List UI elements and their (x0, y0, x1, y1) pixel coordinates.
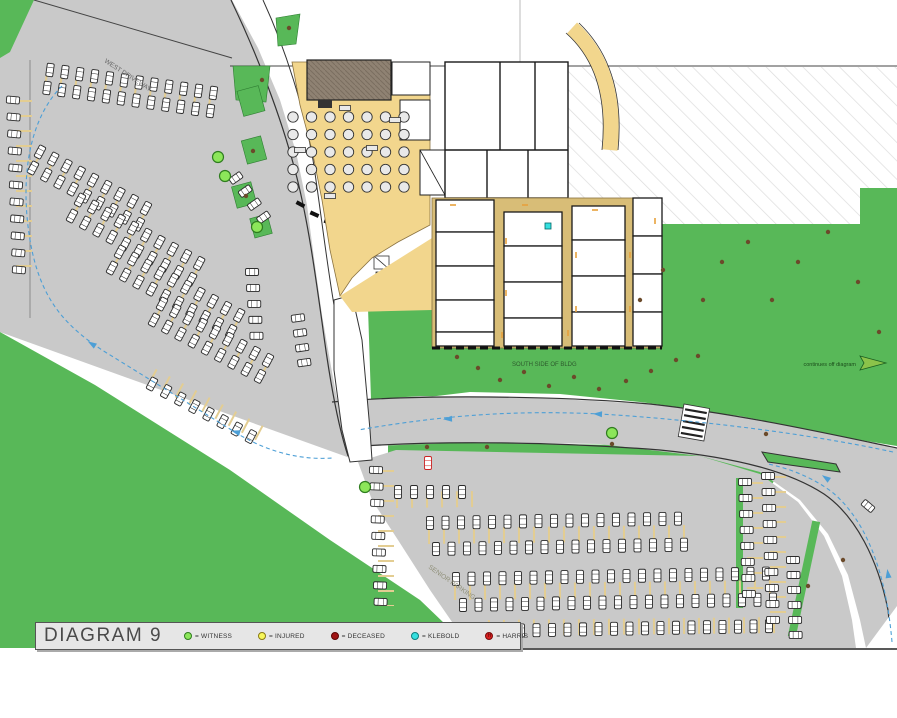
parked-car (443, 486, 450, 499)
parked-car (599, 596, 606, 609)
parked-car (787, 571, 800, 578)
parked-car (9, 181, 23, 189)
parked-car (499, 572, 506, 585)
parked-car (762, 473, 775, 480)
cafeteria-table (362, 164, 372, 174)
tree-icon (674, 358, 678, 362)
parked-car (654, 569, 661, 582)
parked-car (587, 540, 594, 553)
parked-car (707, 594, 714, 607)
parked-car (612, 513, 619, 526)
cafeteria-table (288, 182, 298, 192)
parked-car (564, 623, 571, 636)
cafeteria-table (399, 147, 409, 157)
cafeteria-table (380, 147, 390, 157)
tree-icon (649, 369, 653, 373)
parked-car (427, 486, 434, 499)
parked-car (583, 596, 590, 609)
parked-car (576, 570, 583, 583)
parked-car (731, 568, 738, 581)
legend-dot-icon: H (485, 632, 493, 640)
parked-car (105, 71, 114, 85)
tree-icon (696, 354, 700, 358)
tree-icon (485, 445, 489, 449)
parked-car (488, 515, 495, 528)
parked-car (716, 568, 723, 581)
parked-car (6, 96, 20, 104)
parked-car (634, 539, 641, 552)
legend-item-label: = INJURED (269, 633, 305, 640)
parked-car (249, 316, 262, 323)
parked-car (395, 486, 402, 499)
parked-car (680, 538, 687, 551)
parked-car (369, 466, 382, 473)
parked-car (371, 516, 384, 523)
tree-icon (251, 149, 255, 153)
parked-car (626, 622, 633, 635)
parked-car (789, 631, 802, 638)
parked-car (740, 510, 753, 517)
legend-dot-icon (184, 632, 192, 640)
parked-car (473, 516, 480, 529)
parked-car (688, 621, 695, 634)
parked-car (740, 526, 753, 533)
site-map-svg: SOUTH SIDE OF BLDG continues off diagram… (0, 0, 897, 718)
parked-car (442, 516, 449, 529)
parked-car (579, 623, 586, 636)
parked-car (674, 512, 681, 525)
parked-car (764, 552, 777, 559)
parked-car (248, 300, 261, 307)
tree-icon (856, 280, 860, 284)
parked-car (595, 623, 602, 636)
tree-icon (720, 260, 724, 264)
tree-icon (746, 240, 750, 244)
parked-car (550, 514, 557, 527)
off-diagram-label: continues off diagram (804, 362, 857, 368)
tree-icon (522, 370, 526, 374)
parked-car (630, 596, 637, 609)
cafeteria-table (362, 182, 372, 192)
parked-car (610, 622, 617, 635)
tree-icon (597, 387, 601, 391)
cafeteria-table (325, 182, 335, 192)
parked-car (645, 595, 652, 608)
parked-car (10, 215, 24, 223)
tree-icon (638, 298, 642, 302)
parked-car (494, 541, 501, 554)
parked-car (685, 568, 692, 581)
cafeteria-table (306, 147, 316, 157)
parked-car (750, 620, 757, 633)
parked-car (659, 512, 666, 525)
parked-car (43, 81, 52, 95)
parked-car (641, 622, 648, 635)
parked-car (703, 621, 710, 634)
parked-car (568, 597, 575, 610)
tree-icon (610, 442, 614, 446)
cafeteria-table (343, 112, 353, 122)
parked-car (723, 594, 730, 607)
parked-car (250, 332, 263, 339)
cafeteria-table (288, 129, 298, 139)
parked-car (545, 571, 552, 584)
diagram-title: DIAGRAM 9 (44, 625, 162, 647)
parked-car (295, 343, 309, 352)
parked-car (132, 94, 141, 108)
tree-icon (547, 384, 551, 388)
parked-car (194, 84, 203, 98)
parked-car (719, 620, 726, 633)
cafeteria-rect-table (295, 148, 306, 153)
parked-car (372, 549, 385, 556)
parked-car (60, 65, 69, 79)
parked-car (552, 597, 559, 610)
harris-vehicle (425, 457, 432, 470)
upper-classrooms (445, 62, 568, 198)
legend-dot-icon (411, 632, 419, 640)
south-lawn-label: SOUTH SIDE OF BLDG (512, 362, 577, 368)
witness-marker (607, 428, 618, 439)
legend-item-label: = DECEASED (342, 633, 385, 640)
parked-car (669, 569, 676, 582)
parked-car (741, 558, 754, 565)
parked-car (665, 538, 672, 551)
cafeteria-table (325, 147, 335, 157)
parked-car (371, 499, 384, 506)
parked-car (767, 616, 780, 623)
tree-icon (877, 330, 881, 334)
parked-car (537, 597, 544, 610)
parked-car (638, 569, 645, 582)
cafeteria-table (343, 182, 353, 192)
parked-car (739, 479, 752, 486)
cafeteria-table (306, 129, 316, 139)
parked-car (541, 541, 548, 554)
parked-car (623, 570, 630, 583)
parked-car (293, 328, 307, 337)
cafeteria-table (325, 164, 335, 174)
parked-car (643, 513, 650, 526)
parked-car (7, 113, 21, 121)
diagram-canvas: SOUTH SIDE OF BLDG continues off diagram… (0, 0, 897, 718)
witness-marker (220, 171, 231, 182)
parked-car (147, 96, 156, 110)
parked-car (427, 517, 434, 530)
parked-car (789, 616, 802, 623)
parked-car (548, 623, 555, 636)
parked-car (764, 536, 777, 543)
parked-car (657, 622, 664, 635)
parked-car (7, 130, 21, 138)
parked-car (692, 594, 699, 607)
cafeteria-rect-table (340, 106, 351, 111)
parked-car (741, 542, 754, 549)
parked-car (457, 516, 464, 529)
parked-car (164, 80, 173, 94)
tree-icon (770, 298, 774, 302)
witness-marker (213, 152, 224, 163)
parked-car (763, 520, 776, 527)
parked-car (561, 571, 568, 584)
cafeteria-table (306, 112, 316, 122)
parked-car (479, 542, 486, 555)
parked-car (649, 539, 656, 552)
cafeteria-table (399, 164, 409, 174)
legend-item-label: = WITNESS (195, 633, 232, 640)
cafeteria-table (288, 164, 298, 174)
parked-car (459, 486, 466, 499)
parked-car (787, 557, 800, 564)
parked-car (448, 542, 455, 555)
parked-car (373, 582, 386, 589)
parked-car (765, 584, 778, 591)
legend-item: = WITNESS (184, 632, 232, 640)
stage (307, 60, 391, 100)
cafeteria-table (380, 164, 390, 174)
parked-car (581, 514, 588, 527)
legend-item: H= HARRIS (485, 632, 528, 640)
parked-car (373, 565, 386, 572)
parked-car (676, 595, 683, 608)
parked-car (247, 284, 260, 291)
cafeteria-rect-table (390, 118, 401, 123)
parked-car (521, 597, 528, 610)
legend-item-label: = HARRIS (496, 633, 528, 640)
parked-car (9, 164, 23, 172)
parked-car (372, 532, 385, 539)
tree-icon (701, 298, 705, 302)
kitchen-room (392, 62, 430, 95)
legend-bar: DIAGRAM 9 = WITNESS= INJURED= DECEASED= … (35, 622, 521, 650)
parked-car (597, 514, 604, 527)
legend-dot-icon (258, 632, 266, 640)
tree-icon (287, 26, 291, 30)
parked-car (291, 314, 305, 323)
parked-car (191, 102, 200, 116)
tree-icon (244, 194, 248, 198)
parked-car (788, 586, 801, 593)
parked-car (614, 596, 621, 609)
parked-car (10, 198, 24, 206)
parked-car (628, 513, 635, 526)
tree-icon (476, 366, 480, 370)
tree-icon (572, 375, 576, 379)
cafeteria-table (325, 112, 335, 122)
cafeteria-table (362, 129, 372, 139)
cafeteria-table (399, 129, 409, 139)
parked-car (87, 87, 96, 101)
tree-icon (796, 260, 800, 264)
parked-car (179, 82, 188, 96)
legend-item-label: = KLEBOLD (422, 633, 459, 640)
parked-car (742, 590, 755, 597)
parked-car (75, 67, 84, 81)
cafeteria-table (306, 182, 316, 192)
parked-car (762, 488, 775, 495)
parked-car (374, 598, 387, 605)
tree-icon (764, 432, 768, 436)
parked-car (533, 624, 540, 637)
legend-item: = DECEASED (331, 632, 385, 640)
cafeteria-table (362, 112, 372, 122)
parked-car (607, 570, 614, 583)
parked-car (603, 540, 610, 553)
parked-car (765, 568, 778, 575)
parked-car (468, 572, 475, 585)
cafeteria-table (380, 129, 390, 139)
tree-icon (841, 558, 845, 562)
tree-icon (425, 445, 429, 449)
parked-car (46, 63, 55, 77)
parked-car (297, 358, 311, 367)
tree-icon (455, 355, 459, 359)
witness-marker (360, 482, 371, 493)
legend-dot-icon (331, 632, 339, 640)
parked-car (504, 515, 511, 528)
parked-car (57, 83, 66, 97)
parked-car (72, 85, 81, 99)
parked-car (592, 570, 599, 583)
parked-car (411, 486, 418, 499)
parked-car (12, 249, 26, 257)
parked-car (763, 504, 776, 511)
cafeteria-table (399, 182, 409, 192)
parked-car (572, 540, 579, 553)
parked-car (742, 574, 755, 581)
parked-car (370, 483, 383, 490)
parked-car (90, 69, 99, 83)
parked-car (556, 540, 563, 553)
cafeteria-table (325, 129, 335, 139)
parked-car (490, 598, 497, 611)
parked-car (788, 601, 801, 608)
parked-car (475, 598, 482, 611)
parked-car (739, 494, 752, 501)
parked-car (209, 86, 218, 100)
parked-car (618, 539, 625, 552)
stage-step (318, 100, 332, 108)
tree-icon (498, 378, 502, 382)
parked-car (510, 541, 517, 554)
parked-car (519, 515, 526, 528)
cafeteria-rect-table (367, 146, 378, 151)
tree-icon (806, 584, 810, 588)
legend-item: = KLEBOLD (411, 632, 459, 640)
witness-marker (252, 222, 263, 233)
parked-car (176, 100, 185, 114)
parked-car (672, 621, 679, 634)
parked-car (700, 568, 707, 581)
cafeteria-rect-table (325, 194, 336, 199)
cafeteria-table (288, 112, 298, 122)
parked-car (161, 98, 170, 112)
parked-car (117, 92, 126, 106)
parked-car (206, 104, 215, 118)
parked-car (530, 571, 537, 584)
parked-car (460, 599, 467, 612)
parked-car (245, 429, 257, 444)
tree-icon (826, 230, 830, 234)
parked-car (766, 600, 779, 607)
parked-car (12, 266, 26, 274)
tree-icon (624, 379, 628, 383)
parked-car (102, 89, 111, 103)
legend-item: = INJURED (258, 632, 305, 640)
parked-car (463, 542, 470, 555)
parked-car (734, 620, 741, 633)
klebold-marker (545, 223, 551, 229)
parked-car (525, 541, 532, 554)
parked-car (535, 515, 542, 528)
legend-items: = WITNESS= INJURED= DECEASED= KLEBOLDH= … (184, 632, 528, 640)
cafeteria-table (343, 147, 353, 157)
parked-car (433, 543, 440, 556)
parked-car (566, 514, 573, 527)
parked-car (506, 598, 513, 611)
cafeteria-table (306, 164, 316, 174)
parked-car (514, 571, 521, 584)
cafeteria-table (343, 129, 353, 139)
parked-car (11, 232, 25, 240)
tree-icon (260, 78, 264, 82)
cafeteria-table (343, 164, 353, 174)
parked-car (661, 595, 668, 608)
parked-car (483, 572, 490, 585)
parked-car (246, 269, 259, 276)
parked-car (8, 147, 22, 155)
cafeteria-table (380, 182, 390, 192)
tree-icon (661, 268, 665, 272)
